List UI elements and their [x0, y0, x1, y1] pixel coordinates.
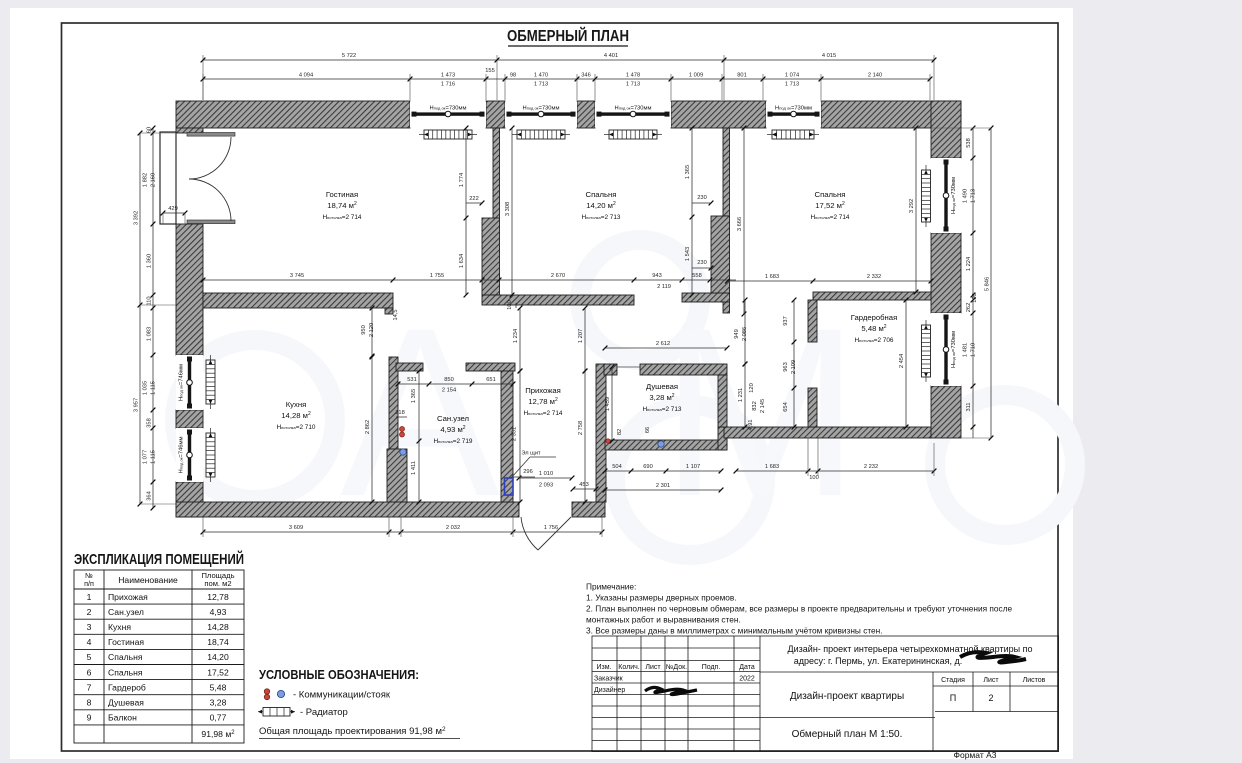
svg-text:Лист: Лист: [645, 664, 661, 671]
svg-text:1 756: 1 756: [544, 525, 558, 531]
svg-text:18,74: 18,74: [207, 637, 229, 647]
svg-text:Гардеробная: Гардеробная: [851, 313, 898, 322]
svg-text:1 411: 1 411: [411, 461, 417, 475]
svg-text:2 154: 2 154: [442, 388, 456, 394]
svg-text:ОБМЕРНЫЙ ПЛАН: ОБМЕРНЫЙ ПЛАН: [507, 27, 629, 45]
svg-text:1 083: 1 083: [147, 327, 153, 341]
svg-text:1 360: 1 360: [147, 254, 153, 268]
svg-text:5 722: 5 722: [342, 53, 356, 59]
svg-text:1 882: 1 882: [143, 173, 149, 187]
svg-text:429: 429: [168, 206, 178, 212]
svg-text:1: 1: [87, 592, 92, 602]
svg-text:5,48: 5,48: [210, 682, 227, 692]
svg-text:1 459: 1 459: [605, 397, 611, 411]
svg-text:1 234: 1 234: [513, 329, 519, 343]
svg-text:2 301: 2 301: [656, 483, 670, 489]
svg-text:Hпод ок=730мм: Hпод ок=730мм: [615, 105, 652, 111]
svg-text:3,28: 3,28: [210, 698, 227, 708]
svg-text:5,48 м2: 5,48 м2: [861, 324, 886, 333]
svg-text:2 454: 2 454: [899, 354, 905, 368]
svg-text:1 107: 1 107: [686, 464, 700, 470]
svg-text:Эл щит: Эл щит: [521, 451, 541, 457]
svg-text:690: 690: [643, 464, 653, 470]
svg-text:12,78 м2: 12,78 м2: [528, 397, 558, 406]
svg-text:Гостиная: Гостиная: [326, 190, 358, 199]
svg-text:№Док.: №Док.: [666, 664, 687, 671]
svg-text:Прихожая: Прихожая: [525, 386, 561, 395]
svg-text:538: 538: [966, 138, 972, 148]
svg-text:1 713: 1 713: [785, 82, 799, 88]
svg-text:110: 110: [147, 296, 153, 305]
svg-text:3 392: 3 392: [134, 211, 140, 225]
svg-text:Гостиная: Гостиная: [108, 637, 144, 647]
svg-text:Кухня: Кухня: [286, 400, 307, 409]
svg-text:5: 5: [87, 652, 92, 662]
svg-text:Заказчик: Заказчик: [594, 676, 624, 683]
svg-text:2 670: 2 670: [551, 273, 565, 279]
svg-text:1 365: 1 365: [685, 165, 691, 179]
svg-text:4 401: 4 401: [604, 53, 618, 59]
svg-text:Гардероб: Гардероб: [108, 682, 146, 692]
svg-text:Лист: Лист: [983, 677, 999, 684]
svg-text:3 609: 3 609: [289, 525, 303, 531]
svg-text:1 634: 1 634: [459, 254, 465, 268]
svg-text:Hпод ок=730мм: Hпод ок=730мм: [523, 105, 560, 111]
svg-text:Hпод ок=730мм: Hпод ок=730мм: [951, 331, 957, 368]
svg-text:311: 311: [966, 402, 972, 411]
svg-text:1 224: 1 224: [966, 257, 972, 271]
svg-text:Листов: Листов: [1023, 677, 1046, 684]
svg-text:3 292: 3 292: [909, 199, 915, 213]
svg-text:1 683: 1 683: [765, 464, 779, 470]
svg-text:654: 654: [783, 402, 789, 412]
svg-text:Hпотолка=2 719: Hпотолка=2 719: [434, 438, 473, 445]
svg-text:222: 222: [469, 196, 479, 202]
svg-text:1 077: 1 077: [143, 450, 149, 464]
svg-text:2 145: 2 145: [760, 399, 766, 413]
svg-text:Кухня: Кухня: [108, 622, 131, 632]
svg-text:14,5: 14,5: [393, 309, 399, 320]
svg-text:Спальня: Спальня: [586, 190, 617, 199]
svg-text:1 074: 1 074: [785, 73, 799, 79]
svg-text:Hпод ок=746мм: Hпод ок=746мм: [179, 437, 185, 474]
svg-text:531: 531: [407, 377, 417, 383]
svg-text:3,28 м2: 3,28 м2: [649, 393, 674, 402]
svg-text:4,93 м2: 4,93 м2: [440, 425, 465, 434]
svg-text:850: 850: [444, 377, 454, 383]
svg-text:Обмерный план М 1:50.: Обмерный план М 1:50.: [792, 728, 903, 740]
svg-text:1 473: 1 473: [441, 73, 455, 79]
svg-text:2: 2: [87, 607, 92, 617]
svg-text:Hпотолка=2 714: Hпотолка=2 714: [811, 214, 850, 221]
svg-text:2 758: 2 758: [578, 421, 584, 435]
svg-text:1 035: 1 035: [143, 381, 149, 395]
svg-text:Дизайнер: Дизайнер: [594, 686, 625, 694]
svg-text:1 478: 1 478: [626, 73, 640, 79]
svg-text:950: 950: [361, 325, 367, 335]
svg-text:Hпод ок=730мм: Hпод ок=730мм: [775, 105, 812, 111]
svg-text:1 543: 1 543: [685, 247, 691, 261]
svg-text:3. Все размеры даны в миллимет: 3. Все размеры даны в миллиметрах с мини…: [586, 626, 883, 636]
svg-text:3 957: 3 957: [134, 398, 140, 412]
svg-text:2 032: 2 032: [446, 525, 460, 531]
svg-text:1 231: 1 231: [738, 388, 744, 402]
svg-text:9: 9: [87, 713, 92, 723]
svg-text:П: П: [950, 693, 956, 703]
svg-text:2 120: 2 120: [369, 323, 375, 337]
svg-text:1 774: 1 774: [459, 173, 465, 187]
svg-text:66: 66: [645, 427, 651, 433]
svg-text:937: 937: [783, 316, 789, 326]
svg-text:358: 358: [147, 418, 153, 428]
svg-text:2 232: 2 232: [864, 464, 878, 470]
svg-text:1 481: 1 481: [963, 343, 969, 357]
svg-text:7: 7: [87, 682, 92, 692]
svg-text:1 755: 1 755: [430, 273, 444, 279]
svg-text:УСЛОВНЫЕ ОБОЗНАЧЕНИЯ:: УСЛОВНЫЕ ОБОЗНАЧЕНИЯ:: [259, 667, 419, 682]
svg-text:Формат А3: Формат А3: [954, 750, 997, 760]
svg-text:100: 100: [507, 300, 513, 310]
svg-text:651: 651: [486, 377, 496, 383]
svg-text:Hпотолка=2 713: Hпотолка=2 713: [643, 406, 682, 413]
svg-text:14,20 м2: 14,20 м2: [586, 201, 616, 210]
svg-text:18,74 м2: 18,74 м2: [327, 201, 357, 210]
svg-text:218: 218: [395, 410, 405, 416]
svg-text:943: 943: [652, 273, 662, 279]
svg-text:Душевая: Душевая: [108, 698, 144, 708]
svg-text:3 666: 3 666: [737, 217, 743, 231]
svg-text:1 713: 1 713: [626, 82, 640, 88]
svg-text:п/п: п/п: [84, 579, 94, 588]
svg-text:Колич.: Колич.: [618, 664, 639, 671]
svg-text:801: 801: [737, 73, 747, 79]
svg-text:832: 832: [752, 401, 758, 411]
svg-text:17,52: 17,52: [207, 667, 229, 677]
svg-text:2 086: 2 086: [742, 327, 748, 341]
svg-text:346: 346: [581, 73, 591, 79]
svg-text:364: 364: [147, 491, 153, 501]
svg-text:Стадия: Стадия: [941, 677, 965, 684]
svg-text:14,20: 14,20: [207, 652, 229, 662]
svg-text:1 207: 1 207: [578, 329, 584, 343]
svg-text:Примечание:: Примечание:: [586, 582, 636, 592]
svg-text:1 713: 1 713: [971, 189, 977, 203]
svg-text:2: 2: [988, 693, 993, 703]
svg-text:1 115: 1 115: [151, 450, 157, 464]
svg-text:Наименование: Наименование: [118, 575, 178, 585]
svg-text:5 846: 5 846: [985, 277, 991, 291]
svg-text:- Коммуникации/стояк: - Коммуникации/стояк: [293, 690, 391, 701]
svg-text:Hпотолка=2 714: Hпотолка=2 714: [524, 410, 563, 417]
svg-text:Душевая: Душевая: [646, 382, 678, 391]
svg-text:120: 120: [749, 383, 755, 393]
svg-text:Прихожая: Прихожая: [108, 592, 148, 602]
svg-text:1 716: 1 716: [441, 82, 455, 88]
svg-text:Спальня: Спальня: [108, 652, 143, 662]
svg-text:1 470: 1 470: [534, 73, 548, 79]
svg-text:4,91: 4,91: [748, 419, 754, 430]
svg-text:230: 230: [697, 260, 707, 266]
svg-text:пом. м2: пом. м2: [204, 579, 231, 588]
svg-text:2 093: 2 093: [539, 483, 553, 489]
svg-text:2 862: 2 862: [365, 420, 371, 434]
svg-text:1 115: 1 115: [151, 381, 157, 395]
svg-text:адресу: г. Пермь, ул. Екатерин: адресу: г. Пермь, ул. Екатерининская, д.: [794, 656, 963, 666]
svg-text:155: 155: [485, 68, 495, 74]
svg-text:558: 558: [692, 273, 702, 279]
svg-text:0,77: 0,77: [210, 713, 227, 723]
svg-text:98: 98: [510, 73, 516, 79]
svg-text:Дизайн- проект интерьера четыр: Дизайн- проект интерьера четырехкомнатно…: [788, 644, 1033, 654]
svg-text:8: 8: [87, 698, 92, 708]
svg-text:Сан.узел: Сан.узел: [437, 414, 469, 423]
svg-text:Hпод ок=730мм: Hпод ок=730мм: [430, 105, 467, 111]
svg-text:2. План выполнен по черновым о: 2. План выполнен по черновым обмерам, вс…: [586, 604, 1013, 614]
svg-text:2 140: 2 140: [868, 73, 882, 79]
svg-text:100: 100: [809, 475, 819, 481]
svg-text:Hпод ок=730мм: Hпод ок=730мм: [951, 177, 957, 214]
svg-text:963: 963: [783, 362, 789, 372]
svg-text:14,28 м2: 14,28 м2: [281, 411, 311, 420]
svg-text:6: 6: [87, 667, 92, 677]
svg-text:12,78: 12,78: [207, 592, 229, 602]
svg-text:1 490: 1 490: [963, 189, 969, 203]
svg-text:Hпотолка=2 713: Hпотолка=2 713: [582, 214, 621, 221]
svg-text:Hпотолка=2 714: Hпотолка=2 714: [323, 214, 362, 221]
svg-text:2 119: 2 119: [657, 284, 671, 290]
svg-text:1 683: 1 683: [765, 274, 779, 280]
svg-text:Общая площадь проектирования 9: Общая площадь проектирования 91,98 м2: [259, 726, 446, 737]
svg-text:Балкон: Балкон: [108, 713, 137, 723]
svg-text:1 009: 1 009: [689, 73, 703, 79]
svg-text:230: 230: [697, 195, 707, 201]
svg-text:2 331: 2 331: [512, 427, 518, 441]
svg-text:91,98 м2: 91,98 м2: [201, 729, 235, 739]
svg-text:60: 60: [147, 127, 153, 133]
svg-text:14,28: 14,28: [207, 622, 229, 632]
svg-text:949: 949: [734, 329, 740, 339]
svg-text:Hпотолка=2 710: Hпотолка=2 710: [277, 424, 316, 431]
svg-text:100: 100: [972, 293, 978, 303]
svg-text:4 015: 4 015: [822, 53, 836, 59]
svg-text:504: 504: [612, 464, 622, 470]
svg-text:Спальня: Спальня: [815, 190, 846, 199]
svg-text:Сан.узел: Сан.узел: [108, 607, 144, 617]
svg-text:82: 82: [617, 429, 623, 435]
svg-text:2 612: 2 612: [656, 341, 670, 347]
svg-text:Hпод ок=746мм: Hпод ок=746мм: [179, 364, 185, 401]
svg-text:3 745: 3 745: [290, 273, 304, 279]
svg-text:1 010: 1 010: [539, 471, 553, 477]
svg-text:17,52 м2: 17,52 м2: [815, 201, 845, 210]
svg-text:1. Указаны размеры дверных про: 1. Указаны размеры дверных проемов.: [586, 593, 737, 603]
svg-text:2022: 2022: [739, 676, 755, 683]
svg-text:3 308: 3 308: [505, 202, 511, 216]
svg-text:1 365: 1 365: [411, 389, 417, 403]
svg-text:Дата: Дата: [739, 664, 755, 671]
svg-text:Дизайн-проект квартиры: Дизайн-проект квартиры: [790, 691, 904, 702]
svg-text:2 332: 2 332: [867, 274, 881, 280]
svg-text:монтажных работ и выравнивания: монтажных работ и выравнивания стен.: [586, 615, 741, 625]
svg-text:Подп.: Подп.: [702, 664, 721, 671]
svg-text:Hпотолка=2 706: Hпотолка=2 706: [855, 337, 894, 344]
svg-text:296: 296: [523, 469, 533, 475]
svg-text:3: 3: [87, 622, 92, 632]
svg-text:1 713: 1 713: [534, 82, 548, 88]
svg-text:453: 453: [579, 482, 589, 488]
svg-text:1 710: 1 710: [971, 343, 977, 357]
svg-text:ЭКСПЛИКАЦИЯ ПОМЕЩЕНИЙ: ЭКСПЛИКАЦИЯ ПОМЕЩЕНИЙ: [74, 550, 244, 568]
svg-text:- Радиатор: - Радиатор: [300, 707, 348, 718]
svg-text:2 160: 2 160: [151, 173, 157, 187]
svg-text:4 094: 4 094: [299, 73, 313, 79]
svg-text:2 109: 2 109: [791, 360, 797, 374]
svg-text:Спальня: Спальня: [108, 667, 143, 677]
svg-text:262: 262: [966, 303, 972, 313]
svg-text:4,93: 4,93: [210, 607, 227, 617]
svg-text:Изм.: Изм.: [597, 664, 612, 671]
svg-text:4: 4: [87, 637, 92, 647]
